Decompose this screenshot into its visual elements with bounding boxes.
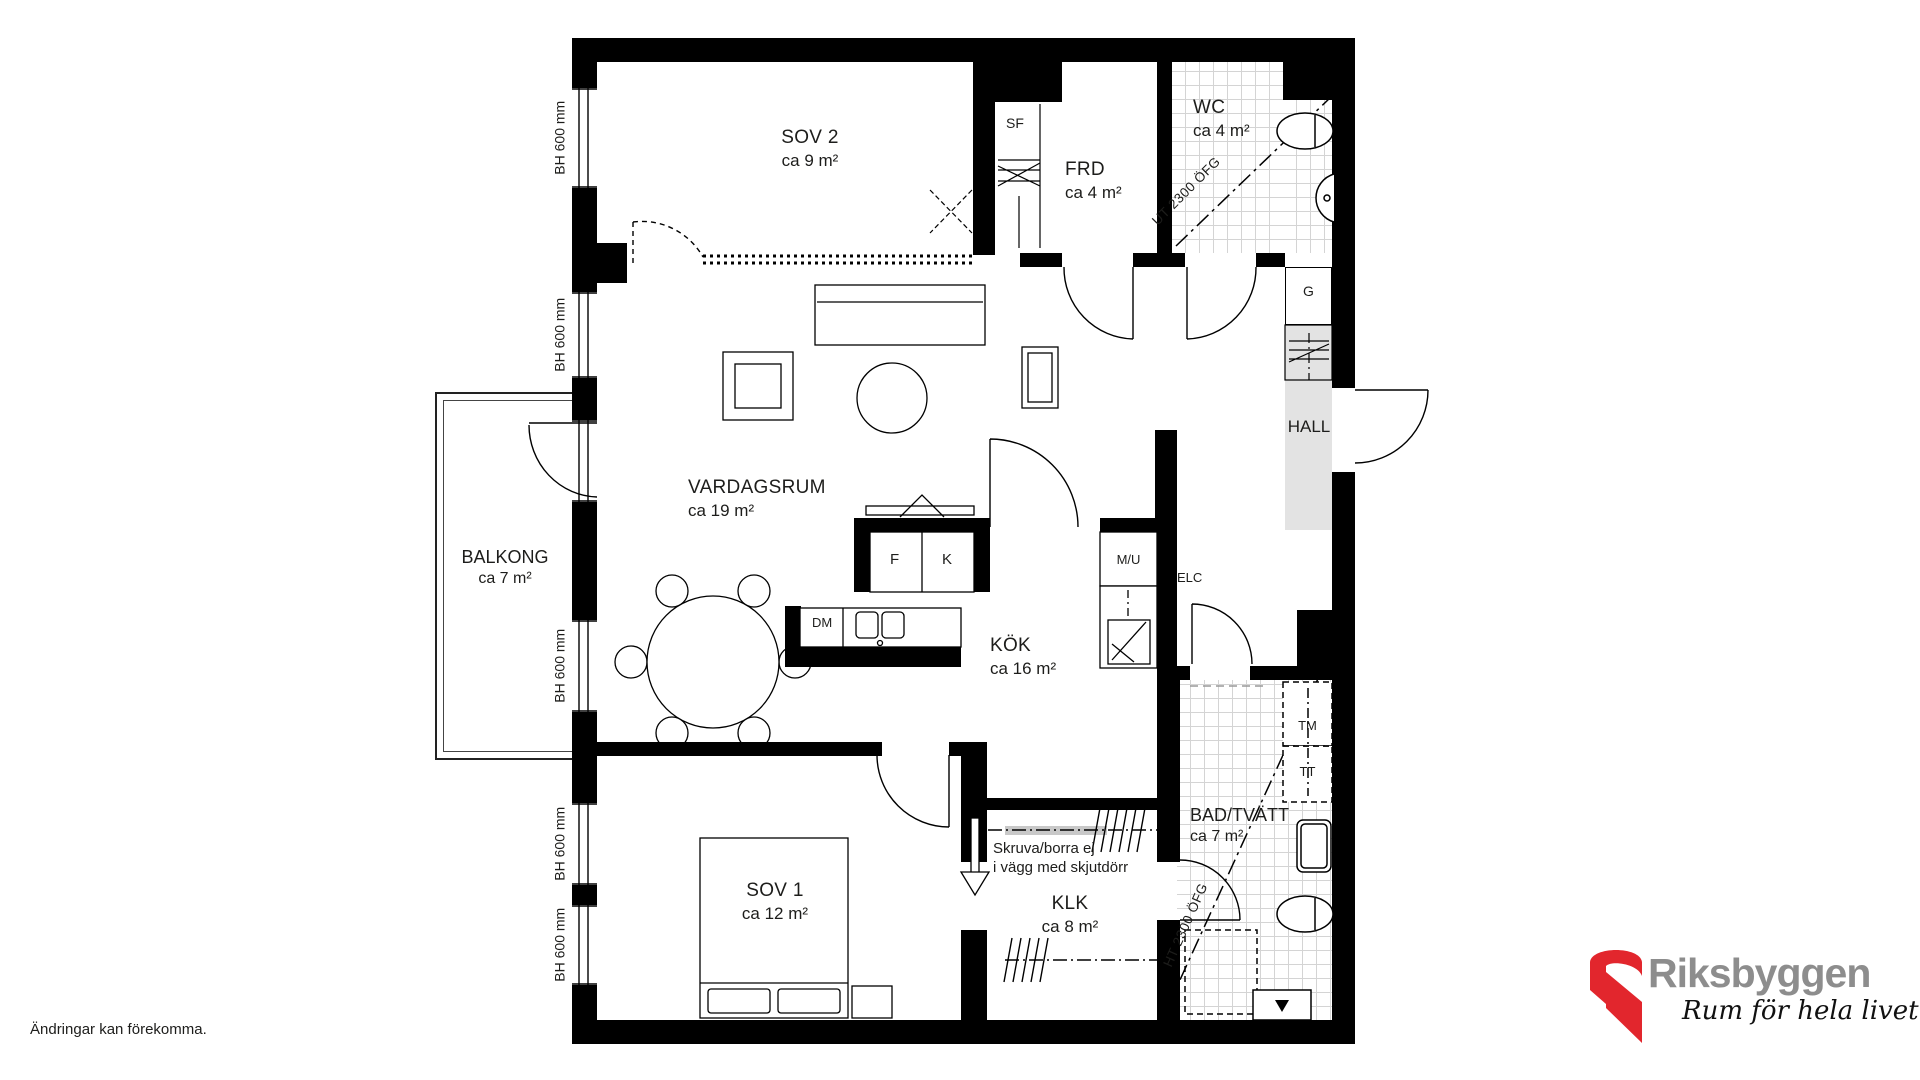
dining-table-icon	[647, 596, 779, 728]
closet-label-g: G	[1285, 282, 1332, 302]
toilet-icon	[1277, 113, 1333, 149]
coffee-table-icon	[857, 363, 927, 433]
sink-icon	[1316, 174, 1334, 222]
room-label-sov2: SOV 2 ca 9 m²	[730, 126, 890, 172]
logo-tagline: Rum för hela livet	[1682, 996, 1919, 1026]
closet-label-sf: SF	[1006, 114, 1024, 134]
sofa-icon	[815, 285, 985, 345]
warning-label-sliding-door: Skruva/borra ej i vägg med skjutdörr	[993, 840, 1128, 878]
toilet-icon	[1277, 896, 1333, 932]
room-label-kok: KÖK ca 16 m²	[990, 634, 1056, 680]
bath-door-opening	[1190, 666, 1250, 680]
armchair-icon	[723, 352, 793, 420]
window-icon	[572, 88, 597, 985]
fixture-label-elc: ELC	[1177, 568, 1202, 588]
window-height-label: BH 600 mm	[551, 900, 569, 990]
fixture-label-dm: DM	[812, 613, 832, 633]
bed-icon	[700, 838, 892, 1018]
room-label-wc: WC ca 4 m²	[1193, 96, 1250, 142]
floor-plan: SOV 2 ca 9 m² SF FRD ca 4 m² WC ca 4 m² …	[0, 0, 1920, 1080]
nightstand-icon	[852, 986, 892, 1018]
fixture-label-mu: M/U	[1100, 550, 1157, 570]
fixture-label-tm: TM	[1283, 716, 1332, 736]
glass-partition	[703, 256, 973, 263]
room-label-frd: FRD ca 4 m²	[1065, 158, 1122, 204]
room-label-bad: BAD/TVÄTT ca 7 m²	[1190, 804, 1289, 847]
wardrobe-mark	[930, 157, 980, 250]
plan-linework	[0, 0, 1920, 1080]
window-height-label: BH 600 mm	[551, 799, 569, 889]
room-label-klk: KLK ca 8 m²	[1010, 892, 1130, 938]
window-height-label: BH 600 mm	[551, 621, 569, 711]
fixture-label-tt: TT	[1283, 762, 1332, 782]
window-height-label: BH 600 mm	[551, 93, 569, 183]
room-label-vardagsrum: VARDAGSRUM ca 19 m²	[688, 476, 826, 522]
sink-icon	[1297, 820, 1331, 872]
shower-icon	[1185, 930, 1257, 1014]
room-label-sov1: SOV 1 ca 12 m²	[715, 879, 835, 925]
room-label-hall: HALL	[1283, 416, 1335, 437]
window-height-label: BH 600 mm	[551, 290, 569, 380]
logo-brand: Riksbyggen	[1648, 950, 1870, 997]
room-label-balkong: BALKONG ca 7 m²	[440, 546, 570, 589]
fixture-label-k: K	[942, 551, 952, 570]
clothes-rail-icon	[1285, 325, 1332, 380]
sliding-door-arrow-icon	[961, 818, 989, 895]
disclaimer-text: Ändringar kan förekomma.	[30, 1021, 207, 1038]
fixture-label-f: F	[890, 551, 899, 570]
fridge-freezer-unit	[866, 495, 974, 592]
